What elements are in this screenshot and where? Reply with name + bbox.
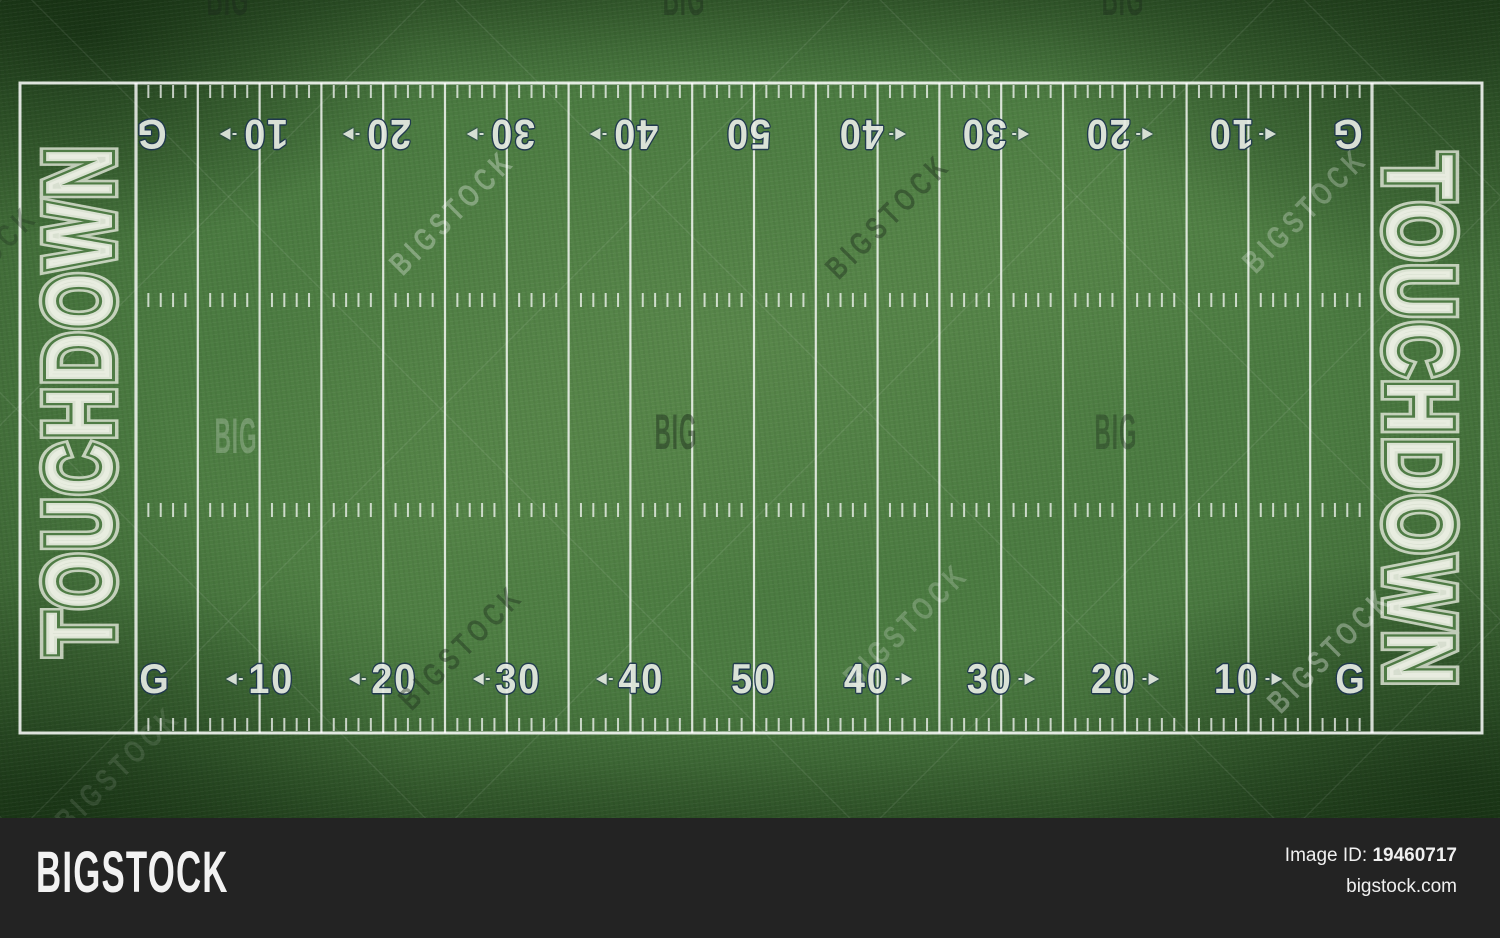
arrow-tail	[1259, 133, 1264, 136]
yard-number-label: G	[135, 113, 166, 155]
arrow-triangle	[1142, 128, 1153, 140]
arrow-right-icon	[895, 673, 912, 685]
yard-number-10: 10	[1214, 658, 1282, 700]
arrow-tail	[1265, 678, 1270, 681]
arrow-left-icon	[596, 673, 613, 685]
arrow-tail	[889, 133, 894, 136]
yard-number-label: 20	[372, 658, 418, 700]
arrow-triangle	[590, 128, 601, 140]
yard-number-label: 20	[1091, 658, 1137, 700]
arrow-triangle	[226, 673, 237, 685]
arrow-right-icon	[590, 128, 607, 140]
yard-number-40: 40	[844, 658, 912, 700]
yard-number-20: 20	[349, 658, 417, 700]
site-url: bigstock.com	[1285, 877, 1457, 896]
yard-number-label: 30	[967, 658, 1013, 700]
arrow-tail	[232, 133, 237, 136]
arrow-triangle	[901, 673, 912, 685]
endzone-right-text: TOUCHDOWN TOUCHDOWN TOUCHDOWN	[1372, 83, 1482, 733]
arrow-tail	[1018, 678, 1023, 681]
image-id-value: 19460717	[1372, 845, 1457, 866]
arrow-right-icon	[220, 128, 237, 140]
yard-number-g: G	[1331, 113, 1362, 155]
bigstock-logo: BIGSTOCK	[36, 844, 229, 902]
arrow-triangle	[467, 128, 478, 140]
arrow-right-icon	[343, 128, 360, 140]
arrow-right-icon	[1142, 673, 1159, 685]
arrow-tail	[609, 678, 614, 681]
arrow-left-icon	[349, 673, 366, 685]
yard-number-label: 30	[489, 113, 535, 155]
stock-image-preview: TOUCHDOWN TOUCHDOWN TOUCHDOWN TOUCHDOWN …	[0, 0, 1500, 938]
yard-number-label: G	[1331, 113, 1362, 155]
yard-number-20: 20	[1085, 113, 1153, 155]
yard-number-label: 20	[1085, 113, 1131, 155]
arrow-tail	[1136, 133, 1141, 136]
arrow-triangle	[1272, 673, 1283, 685]
yard-number-label: 10	[1214, 658, 1260, 700]
arrow-triangle	[1266, 128, 1277, 140]
yard-number-30: 30	[473, 658, 541, 700]
yard-number-label: 20	[366, 113, 412, 155]
arrow-tail	[362, 678, 367, 681]
yard-number-10: 10	[226, 658, 294, 700]
arrow-tail	[238, 678, 243, 681]
arrow-tail	[895, 678, 900, 681]
yard-numbers-bottom: G102030405040302010G	[20, 647, 1482, 711]
arrow-right-icon	[1018, 673, 1035, 685]
arrow-tail	[485, 678, 490, 681]
yard-number-label: 10	[248, 658, 294, 700]
arrow-tail	[1142, 678, 1147, 681]
arrow-left-icon	[1136, 128, 1153, 140]
arrow-left-icon	[1259, 128, 1276, 140]
yard-numbers-top: G102030405040302010G	[20, 102, 1482, 166]
arrow-left-icon	[889, 128, 906, 140]
arrow-right-icon	[467, 128, 484, 140]
yard-number-g: G	[1335, 658, 1366, 700]
arrow-triangle	[596, 673, 607, 685]
yard-number-g: G	[135, 113, 166, 155]
yard-number-label: 50	[731, 658, 777, 700]
yard-number-label: 40	[613, 113, 659, 155]
arrow-tail	[1012, 133, 1017, 136]
watermark-footer: BIGSTOCK Image ID: 19460717 bigstock.com	[0, 818, 1500, 938]
image-id-line: Image ID: 19460717	[1285, 846, 1457, 865]
yard-number-10: 10	[1208, 113, 1276, 155]
arrow-right-icon	[1265, 673, 1282, 685]
arrow-triangle	[895, 128, 906, 140]
field-border	[20, 83, 1482, 733]
arrow-triangle	[1024, 673, 1035, 685]
arrow-tail	[603, 133, 608, 136]
yard-number-40: 40	[590, 113, 658, 155]
yard-number-40: 40	[596, 658, 664, 700]
yard-number-label: G	[1335, 658, 1366, 700]
arrow-tail	[356, 133, 361, 136]
yard-number-label: 30	[961, 113, 1007, 155]
yard-number-20: 20	[1091, 658, 1159, 700]
yard-number-50: 50	[725, 113, 771, 155]
yard-number-10: 10	[220, 113, 288, 155]
arrow-triangle	[473, 673, 484, 685]
yard-number-20: 20	[343, 113, 411, 155]
yard-number-label: 50	[725, 113, 771, 155]
arrow-triangle	[1018, 128, 1029, 140]
yard-number-label: 10	[242, 113, 288, 155]
yard-number-30: 30	[967, 658, 1035, 700]
yard-number-30: 30	[467, 113, 535, 155]
yard-number-50: 50	[731, 658, 777, 700]
endzone-left-text: TOUCHDOWN TOUCHDOWN TOUCHDOWN	[20, 83, 136, 733]
yard-number-label: 40	[619, 658, 665, 700]
arrow-triangle	[343, 128, 354, 140]
arrow-left-icon	[226, 673, 243, 685]
endzone-right-fill: TOUCHDOWN	[1366, 155, 1473, 690]
arrow-triangle	[220, 128, 231, 140]
endzone-left-fill: TOUCHDOWN	[26, 143, 133, 655]
arrow-triangle	[349, 673, 360, 685]
yard-number-label: 40	[838, 113, 884, 155]
arrow-left-icon	[473, 673, 490, 685]
yard-number-label: G	[139, 658, 170, 700]
yard-number-40: 40	[838, 113, 906, 155]
yard-number-30: 30	[961, 113, 1029, 155]
image-id-label: Image ID:	[1285, 845, 1367, 866]
footer-info: Image ID: 19460717 bigstock.com	[1285, 846, 1457, 896]
arrow-tail	[479, 133, 484, 136]
yard-number-g: G	[139, 658, 170, 700]
arrow-triangle	[1148, 673, 1159, 685]
yard-number-label: 10	[1208, 113, 1254, 155]
yard-number-label: 40	[844, 658, 890, 700]
yard-number-label: 30	[495, 658, 541, 700]
arrow-left-icon	[1012, 128, 1029, 140]
football-field: TOUCHDOWN TOUCHDOWN TOUCHDOWN TOUCHDOWN …	[0, 0, 1500, 818]
